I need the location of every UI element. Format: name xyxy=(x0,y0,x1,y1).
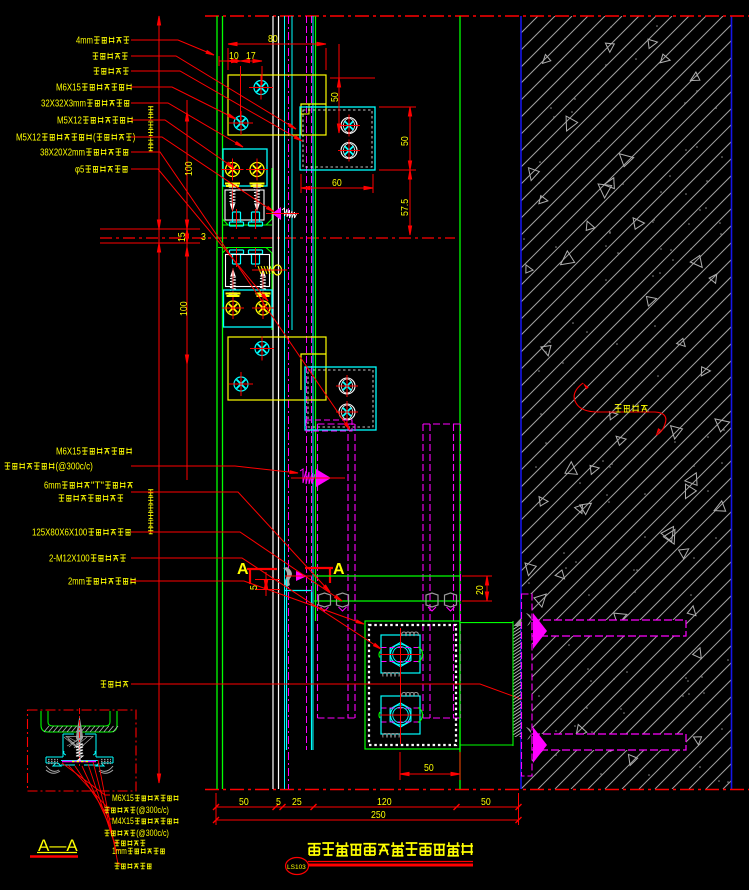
svg-text:5: 5 xyxy=(276,797,281,808)
svg-text:2-M12X100: 2-M12X100 xyxy=(49,554,90,565)
svg-text:50: 50 xyxy=(330,92,341,102)
svg-text:M5X12: M5X12 xyxy=(57,116,82,127)
svg-text:M5X12: M5X12 xyxy=(16,133,41,144)
svg-text:φ5: φ5 xyxy=(75,165,84,176)
svg-text:57.5: 57.5 xyxy=(400,199,411,216)
svg-text:50: 50 xyxy=(400,136,411,146)
svg-text:120: 120 xyxy=(377,797,392,808)
svg-text:M4X15: M4X15 xyxy=(112,816,134,826)
svg-text:10: 10 xyxy=(229,51,239,62)
svg-text:1mm: 1mm xyxy=(112,846,127,856)
svg-text:(@300c/c): (@300c/c) xyxy=(136,828,169,838)
svg-text:(@300c/c): (@300c/c) xyxy=(56,462,93,473)
svg-text:250: 250 xyxy=(371,810,386,821)
svg-text:15: 15 xyxy=(177,232,188,242)
svg-text:4mm: 4mm xyxy=(76,36,93,47)
svg-text:M6X15: M6X15 xyxy=(56,447,81,458)
svg-text:6mm: 6mm xyxy=(44,481,61,492)
svg-text:2mm: 2mm xyxy=(68,577,85,588)
svg-text:125X80X6X100: 125X80X6X100 xyxy=(32,528,87,539)
svg-text:50: 50 xyxy=(239,797,249,808)
svg-text:LS103: LS103 xyxy=(287,864,306,871)
svg-text:(: ( xyxy=(93,133,96,144)
svg-text:100: 100 xyxy=(179,301,190,316)
svg-text:60: 60 xyxy=(332,178,342,189)
svg-text:M6X15: M6X15 xyxy=(112,793,134,803)
svg-text:80: 80 xyxy=(268,34,278,45)
svg-text:"T": "T" xyxy=(91,481,104,492)
svg-text:32X32X3mm: 32X32X3mm xyxy=(41,99,86,110)
svg-text:M6X15: M6X15 xyxy=(56,83,81,94)
svg-text:50: 50 xyxy=(481,797,491,808)
svg-text:17: 17 xyxy=(246,51,256,62)
svg-text:20: 20 xyxy=(475,585,486,595)
svg-text:50: 50 xyxy=(424,763,434,774)
svg-text:5: 5 xyxy=(249,585,260,590)
svg-text:(@300c/c): (@300c/c) xyxy=(136,805,169,815)
svg-text:38X20X2mm: 38X20X2mm xyxy=(40,148,85,159)
svg-text:3: 3 xyxy=(201,232,206,243)
svg-text:25: 25 xyxy=(292,797,302,808)
svg-text:): ) xyxy=(133,133,136,144)
svg-text:100: 100 xyxy=(184,161,195,176)
